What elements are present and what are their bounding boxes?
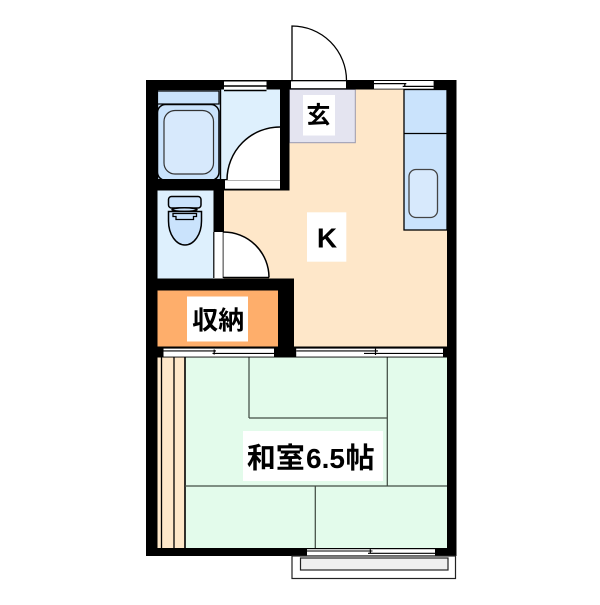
- svg-text:K: K: [317, 223, 337, 254]
- svg-text:6.5: 6.5: [306, 443, 345, 474]
